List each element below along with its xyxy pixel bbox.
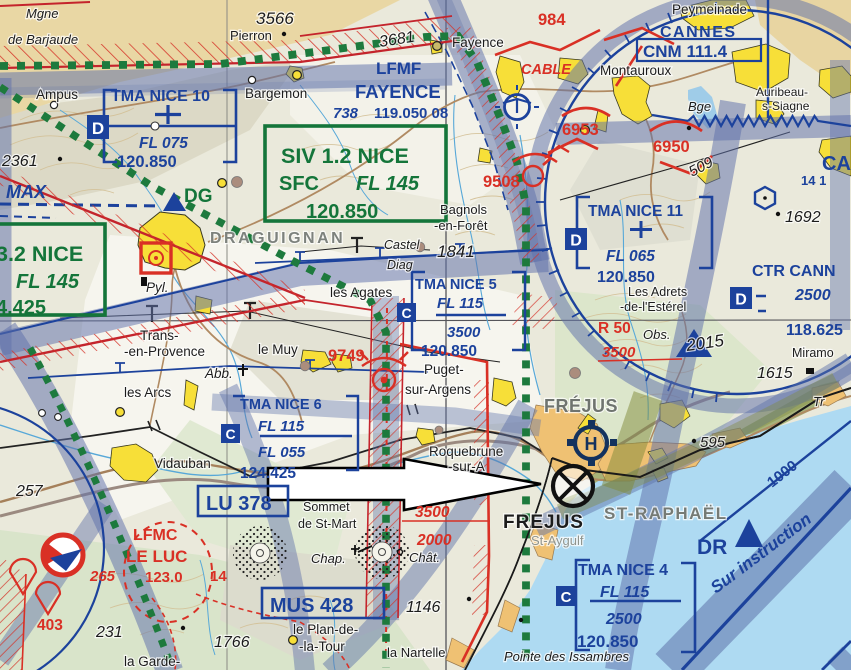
svg-text:le Muy: le Muy [258, 342, 298, 357]
svg-text:Miramo: Miramo [792, 346, 834, 360]
svg-text:Montauroux: Montauroux [600, 63, 672, 78]
svg-text:2000: 2000 [416, 532, 452, 549]
svg-text:TMA NICE 10: TMA NICE 10 [111, 88, 210, 105]
svg-text:2361: 2361 [1, 153, 38, 170]
svg-text:R 50: R 50 [598, 320, 631, 337]
svg-text:St-Aygulf: St-Aygulf [531, 533, 584, 548]
svg-text:120.850: 120.850 [597, 269, 655, 286]
svg-text:Mgne: Mgne [26, 6, 59, 21]
svg-text:DR: DR [697, 536, 727, 559]
svg-text:Peymeinade: Peymeinade [672, 2, 747, 17]
svg-text:123.0: 123.0 [145, 569, 183, 586]
svg-text:3500: 3500 [415, 504, 450, 521]
svg-text:120.850: 120.850 [421, 343, 477, 360]
svg-text:Ampus: Ampus [36, 87, 78, 102]
svg-text:D: D [735, 292, 747, 309]
svg-text:2500: 2500 [794, 287, 831, 304]
svg-text:TMA NICE 11: TMA NICE 11 [588, 203, 683, 220]
svg-text:Abb.: Abb. [204, 366, 233, 381]
svg-text:9749: 9749 [328, 347, 365, 365]
svg-text:C: C [561, 589, 572, 606]
svg-text:984: 984 [538, 11, 566, 29]
svg-text:C: C [225, 426, 235, 442]
svg-text:265: 265 [89, 568, 116, 585]
svg-text:FL 075: FL 075 [139, 135, 188, 152]
svg-text:-en-Provence: -en-Provence [124, 344, 205, 359]
svg-text:Roquebrune: Roquebrune [429, 444, 503, 459]
svg-text:118.625: 118.625 [786, 322, 843, 339]
svg-text:738: 738 [333, 105, 359, 122]
svg-text:FL 115: FL 115 [437, 295, 484, 312]
svg-text:FL 065: FL 065 [606, 248, 655, 265]
svg-text:Pierron: Pierron [230, 28, 272, 43]
svg-text:120.850: 120.850 [306, 201, 378, 223]
svg-text:C: C [401, 305, 411, 321]
svg-text:D: D [570, 233, 582, 250]
svg-text:3500: 3500 [602, 344, 636, 361]
svg-text:TMA NICE 6: TMA NICE 6 [240, 397, 322, 413]
svg-text:TMA NICE 5: TMA NICE 5 [415, 277, 497, 293]
svg-text:FL 115: FL 115 [258, 418, 305, 435]
svg-text:-la-Tour: -la-Tour [299, 639, 345, 654]
svg-text:Puget-: Puget- [424, 362, 464, 377]
svg-text:de St-Mart: de St-Mart [298, 517, 357, 531]
svg-text:Vidauban: Vidauban [154, 456, 211, 471]
svg-text:-en-Forêt: -en-Forêt [434, 218, 488, 233]
svg-text:Fayence: Fayence [452, 35, 504, 50]
svg-text:sur-Argens: sur-Argens [405, 382, 471, 397]
svg-text:CANNES: CANNES [660, 24, 737, 41]
svg-text:14: 14 [210, 568, 227, 585]
svg-text:257: 257 [15, 483, 44, 500]
svg-text:FRÉJUS: FRÉJUS [544, 395, 618, 416]
svg-text:2500: 2500 [605, 611, 642, 628]
svg-text:CABLE: CABLE [521, 62, 572, 78]
svg-text:H: H [585, 434, 598, 454]
svg-text:les Agates: les Agates [330, 285, 393, 300]
svg-text:119.050 08: 119.050 08 [374, 105, 448, 122]
svg-text:Bagnols: Bagnols [440, 202, 487, 217]
svg-text:FL 055: FL 055 [258, 444, 306, 461]
svg-text:1692: 1692 [785, 209, 821, 226]
svg-text:Auribeau-: Auribeau- [756, 85, 808, 99]
svg-text:Pyl.: Pyl. [146, 280, 169, 295]
svg-text:MAX: MAX [6, 182, 47, 202]
svg-text:Chât.: Chât. [409, 550, 440, 565]
svg-text:1615: 1615 [757, 365, 793, 382]
svg-text:LE LUC: LE LUC [126, 547, 187, 566]
svg-text:3566: 3566 [256, 9, 294, 28]
svg-text:595: 595 [700, 434, 726, 451]
svg-text:Chap.: Chap. [311, 551, 346, 566]
svg-text:Trans-: Trans- [140, 328, 179, 343]
svg-text:Diag: Diag [387, 258, 413, 272]
svg-text:Bge: Bge [688, 99, 711, 114]
svg-text:6950: 6950 [653, 138, 690, 156]
svg-text:Castel: Castel [384, 238, 421, 252]
svg-text:-sur-A: -sur-A [448, 459, 485, 474]
svg-text:DRAGUIGNAN: DRAGUIGNAN [210, 230, 345, 247]
svg-text:MUS 428: MUS 428 [270, 595, 353, 617]
svg-text:Bargemon: Bargemon [245, 86, 307, 101]
svg-text:CNM 111.4: CNM 111.4 [643, 42, 728, 61]
svg-text:SFC: SFC [279, 173, 319, 195]
svg-text:DG: DG [184, 186, 213, 207]
svg-text:1766: 1766 [214, 634, 250, 651]
svg-text:9508: 9508 [483, 173, 520, 191]
svg-text:LU 378: LU 378 [206, 493, 272, 515]
svg-text:4.425: 4.425 [0, 297, 46, 319]
svg-text:FL 145: FL 145 [16, 271, 80, 293]
svg-text:la Nartelle: la Nartelle [387, 645, 446, 660]
svg-text:Pointe des Issambres: Pointe des Issambres [504, 649, 630, 664]
svg-text:D: D [92, 119, 104, 138]
svg-text:FL 145: FL 145 [356, 173, 420, 195]
svg-text:-de-l'Estérel: -de-l'Estérel [620, 300, 686, 314]
svg-text:1841: 1841 [437, 242, 475, 261]
svg-text:les Arcs: les Arcs [124, 385, 172, 400]
svg-text:14 1: 14 1 [801, 173, 826, 188]
svg-text:de Barjaude: de Barjaude [8, 32, 78, 47]
svg-text:FAYENCE: FAYENCE [355, 81, 441, 102]
svg-text:s-Siagne: s-Siagne [762, 99, 810, 113]
svg-text:FL 115: FL 115 [600, 584, 650, 601]
svg-text:231: 231 [95, 624, 123, 641]
svg-text:ST-RAPHAËL: ST-RAPHAËL [604, 504, 728, 523]
svg-text:LFMC: LFMC [133, 527, 178, 544]
svg-text:3.2 NICE: 3.2 NICE [0, 242, 83, 266]
svg-text:124.425: 124.425 [240, 465, 296, 482]
svg-text:le Plan-de-: le Plan-de- [293, 622, 358, 637]
svg-text:3500: 3500 [447, 324, 481, 341]
svg-text:CA: CA [822, 153, 851, 175]
svg-text:Sommet: Sommet [303, 500, 350, 514]
svg-text:CTR CANN: CTR CANN [752, 263, 836, 280]
svg-text:la Garde-: la Garde- [124, 654, 180, 669]
svg-text:SIV 1.2 NICE: SIV 1.2 NICE [281, 144, 409, 168]
svg-text:403: 403 [37, 617, 63, 634]
svg-text:120.850: 120.850 [117, 153, 177, 171]
svg-text:TMA NICE 4: TMA NICE 4 [578, 562, 668, 579]
svg-text:FREJUS: FREJUS [503, 512, 584, 533]
svg-text:LFMF: LFMF [376, 59, 421, 78]
svg-text:1146: 1146 [406, 599, 441, 616]
svg-text:6953: 6953 [562, 121, 599, 139]
svg-text:Tr: Tr [813, 394, 825, 409]
svg-text:Les Adrets: Les Adrets [628, 285, 687, 299]
svg-text:Obs.: Obs. [643, 327, 670, 342]
